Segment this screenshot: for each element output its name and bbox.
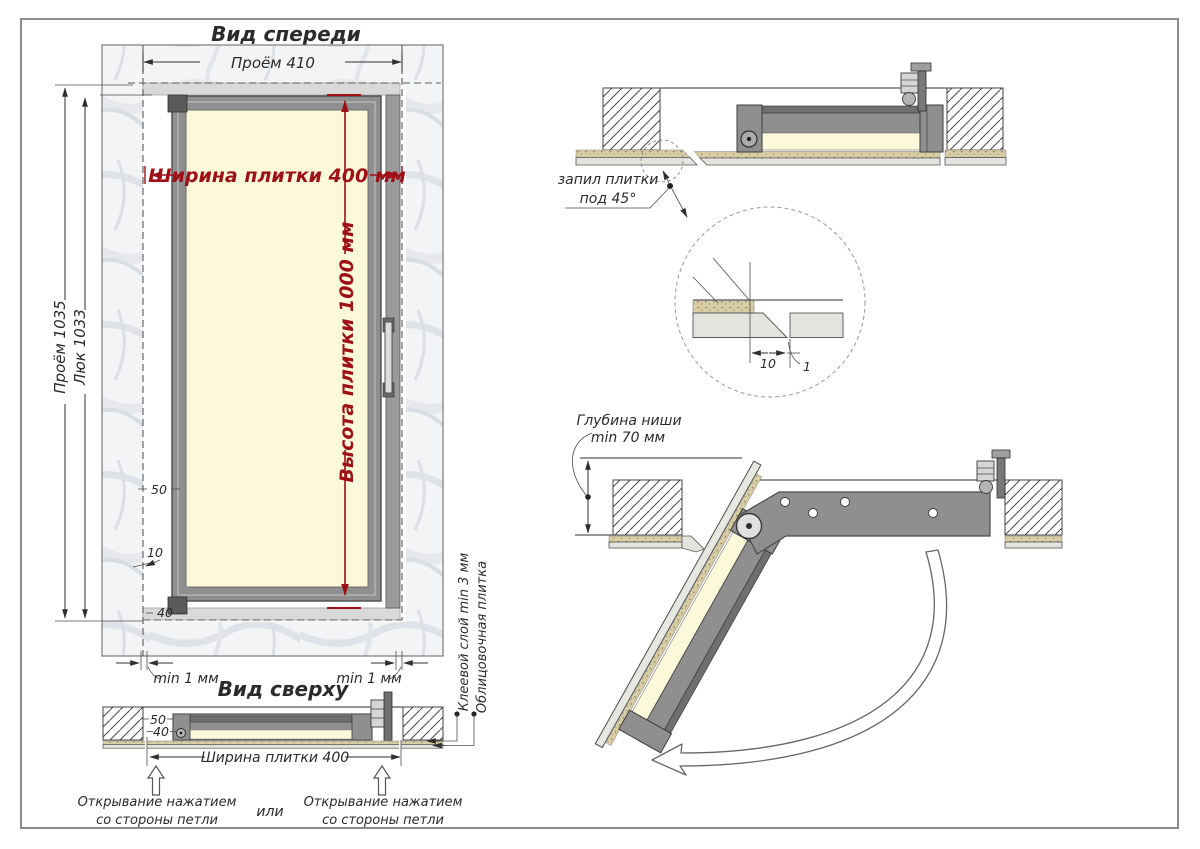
wall-section-right-closed (947, 88, 1003, 150)
drawing-sheet: Вид спереди Про (0, 0, 1200, 849)
frame-hole (781, 498, 790, 507)
detail-circle-view: 10 1 (675, 207, 865, 397)
detail-dim-10-label: 10 (760, 356, 776, 371)
niche-depth-label-2: min 70 мм (591, 430, 666, 446)
open-press-left-line1: Открывание нажатием (78, 795, 237, 810)
frame-plan (173, 714, 372, 740)
technical-drawing: Вид спереди Про (0, 0, 1200, 849)
dim-40-top-label: 40 (153, 724, 169, 739)
open-press-right-line2: со стороны петли (322, 813, 444, 828)
tile-cut-label-2: под 45° (580, 191, 637, 207)
dim-50-front-label: 50 (151, 482, 167, 497)
wall-section-left (103, 707, 143, 740)
latch-section-closed-icon (901, 63, 931, 111)
open-direction-arrow-left (148, 766, 164, 795)
detail-adhesive-layer (693, 301, 754, 314)
or-label: или (256, 804, 283, 820)
latch-plan-icon (371, 692, 392, 742)
dim-gap-left-label: min 1 мм (153, 671, 219, 687)
adhesive-layer-label: Клеевой слой min 3 мм (457, 553, 472, 712)
facing-tile-label: Облицовочная плитка (475, 561, 490, 713)
frame-hole (809, 509, 818, 518)
dim-opening-height-label: Проём 1035 (51, 300, 69, 393)
front-view: Вид спереди Про (51, 22, 443, 687)
dim-tile-width-red: Ширина плитки 400 мм (145, 165, 406, 187)
dim-hatch-height: Люк 1033 (71, 98, 89, 618)
dim-hatch-height-label: Люк 1033 (71, 309, 89, 386)
dim-tile-height-label: Высота плитки 1000 мм (336, 221, 358, 482)
dim-10-front-label: 10 (147, 545, 163, 560)
open-press-right-line1: Открывание нажатием (304, 795, 463, 810)
section-open-view: Глубина ниши min 70 мм (572, 413, 1062, 775)
wall-section-right (403, 707, 443, 740)
frame-section-closed (737, 105, 943, 152)
frame-hole (929, 509, 938, 518)
dim-tile-width-label: Ширина плитки 400 мм (148, 165, 406, 187)
section-closed-view: запил плитки под 45° (558, 63, 1006, 217)
wall-section-left-open (613, 480, 682, 535)
dim-opening-height: Проём 1035 (51, 88, 69, 618)
detail-door-tile (790, 313, 843, 338)
wall-section-left-closed (603, 88, 660, 150)
hinge-top-icon (168, 95, 187, 112)
dim-40-front-label: 40 (157, 605, 173, 620)
top-view-title: Вид сверху (218, 677, 350, 701)
tile-overhang-cut (682, 536, 704, 552)
tile-cut-label-1: запил плитки (558, 172, 659, 188)
wall-section-right-open (1005, 480, 1062, 535)
latch-section-open-icon (977, 450, 1010, 498)
frame-flange-top (143, 83, 400, 95)
tile-cut-callout: запил плитки под 45° (558, 171, 687, 217)
frame-hole (841, 498, 850, 507)
dim-opening-width-label: Проём 410 (231, 54, 315, 72)
niche-depth-label-1: Глубина ниши (576, 413, 681, 429)
detail-dim-1-label: 1 (803, 359, 811, 374)
door-handle (383, 318, 394, 397)
front-view-title: Вид спереди (211, 22, 361, 46)
tile-layers-plan (103, 741, 443, 749)
tile-layers-open (609, 536, 1062, 552)
open-press-left-line2: со стороны петли (96, 813, 218, 828)
dim-tile-width-top-label: Ширина плитки 400 (201, 750, 349, 766)
open-direction-arrow-right (374, 766, 390, 795)
